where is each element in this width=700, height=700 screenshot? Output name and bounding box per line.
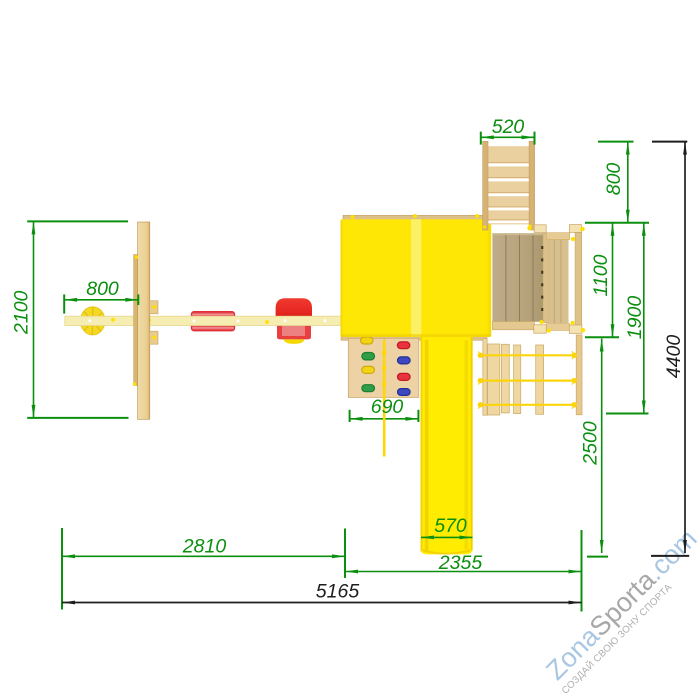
svg-text:2100: 2100 [11, 290, 33, 335]
svg-text:1900: 1900 [624, 296, 646, 340]
svg-text:2355: 2355 [438, 552, 483, 574]
svg-text:5165: 5165 [316, 581, 360, 603]
svg-text:1100: 1100 [590, 254, 612, 296]
svg-text:690: 690 [371, 396, 404, 418]
svg-text:570: 570 [434, 515, 467, 537]
svg-text:2810: 2810 [182, 535, 227, 557]
svg-text:2500: 2500 [580, 421, 602, 466]
svg-text:4400: 4400 [663, 335, 685, 379]
svg-text:800: 800 [603, 163, 625, 196]
svg-text:520: 520 [492, 116, 525, 138]
svg-text:800: 800 [86, 278, 119, 300]
